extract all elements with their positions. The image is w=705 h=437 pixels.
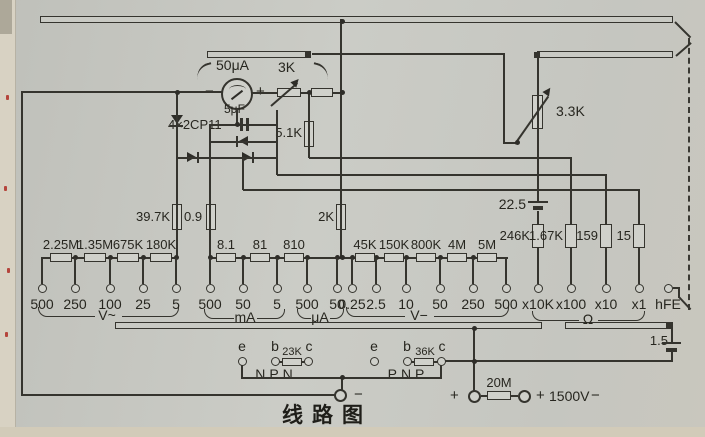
scan-mark	[4, 186, 7, 191]
wire	[336, 258, 338, 284]
wire	[678, 287, 680, 298]
terminal-ua-500	[303, 284, 312, 293]
resistor-vdc	[416, 253, 436, 262]
section-label-ohm: Ω	[583, 312, 593, 326]
pnp-resistor	[414, 358, 434, 366]
npn-b-label: b	[271, 339, 279, 353]
wire	[405, 258, 407, 284]
hv-plus-label: +	[450, 388, 459, 403]
wire	[276, 258, 278, 284]
resistor-label-vdc: 4M	[448, 238, 466, 251]
wire	[351, 258, 353, 284]
wire	[142, 258, 144, 284]
terminal-label-ma: 50	[235, 297, 251, 311]
npn-c-label: c	[306, 339, 313, 353]
terminal-ohm-x10K	[534, 284, 543, 293]
wire	[570, 158, 572, 225]
junction-dot	[340, 90, 345, 95]
resistor-ohm	[633, 224, 645, 248]
terminal-vdc-0.25	[348, 284, 357, 293]
resistor-0.9	[206, 204, 216, 230]
resistor-label-vdc: 5M	[478, 238, 496, 251]
wire	[375, 258, 377, 284]
terminal-vac-25	[139, 284, 148, 293]
wire	[439, 258, 441, 284]
series-resistor	[311, 88, 333, 97]
terminal-label-vdc: 50	[432, 297, 448, 311]
page-edge-left	[0, 0, 16, 437]
resistor-vdc	[384, 253, 404, 262]
section-label-ma: mA	[235, 310, 256, 324]
terminal-label-vdc: 500	[494, 297, 517, 311]
wire	[472, 258, 474, 284]
terminal-label-ma: 500	[198, 297, 221, 311]
terminal-label-ma: 5	[273, 297, 281, 311]
brace	[532, 311, 579, 321]
terminal-ohm-x100	[567, 284, 576, 293]
resistor-ma	[250, 253, 270, 262]
terminal-hfe	[664, 284, 673, 293]
strip-link	[674, 21, 691, 38]
scan-smudge	[0, 0, 12, 34]
resistor-vdc	[447, 253, 467, 262]
terminal-label-vac: 5	[172, 297, 180, 311]
wire	[175, 258, 177, 284]
resistor-label: 2K	[318, 210, 334, 223]
resistor-label: 0.9	[184, 210, 202, 223]
meter-bezel-arc-right	[310, 62, 330, 81]
terminal-ua-50	[333, 284, 342, 293]
pnp-b-label: b	[403, 339, 411, 353]
wire	[109, 258, 111, 284]
diagram-title: 线路图	[282, 399, 372, 429]
resistor-label-vac: 180K	[146, 238, 176, 251]
wire	[252, 92, 277, 94]
terminal-vdc-500	[502, 284, 511, 293]
wire	[306, 258, 308, 284]
resistor-label-vac: 2.25M	[43, 238, 79, 251]
junction-dot	[307, 90, 312, 95]
resistor-label-ohm: 246K	[500, 229, 530, 242]
hv-value-label: 1500V	[549, 389, 589, 403]
terminal-vdc-10	[402, 284, 411, 293]
junction-dot	[235, 122, 240, 127]
section-label-ua: μA	[311, 310, 328, 324]
hv-terminal-left	[468, 390, 481, 403]
terminal-label-vac: 500	[30, 297, 53, 311]
terminal-ma-50	[239, 284, 248, 293]
terminal-vac-500	[38, 284, 47, 293]
strip-contact	[305, 52, 311, 58]
npn-resistor-label: 23K	[282, 347, 302, 358]
scan-mark	[7, 268, 10, 273]
terminal-label-vac: 25	[135, 297, 151, 311]
wire	[671, 329, 673, 343]
resistor-vac	[50, 253, 72, 262]
pot-3k-label: 3K	[278, 60, 295, 74]
wire	[537, 247, 539, 284]
wire	[340, 19, 342, 258]
resistor-label-vdc: 45K	[353, 238, 376, 251]
wire	[605, 247, 607, 284]
wire	[309, 157, 572, 159]
wire	[74, 258, 76, 284]
wire	[241, 365, 243, 378]
scan-mark	[6, 95, 9, 100]
meter-range-label: 50μA	[216, 58, 249, 72]
wire	[570, 247, 572, 284]
battery-22.5-label: 22.5	[499, 197, 526, 211]
terminal-label-vdc: 10	[398, 297, 414, 311]
resistor-label: 39.7K	[136, 210, 170, 223]
wire	[21, 91, 23, 396]
junction-dot	[340, 255, 345, 260]
npn-b-terminal	[271, 357, 280, 366]
hv-plus2-label: +	[536, 388, 545, 403]
hv-minus-label: −	[591, 388, 600, 403]
wire	[277, 174, 607, 176]
pnp-e-terminal	[370, 357, 379, 366]
battery-short-plate	[533, 206, 543, 210]
wire	[22, 91, 222, 93]
terminal-ohm-x1	[635, 284, 644, 293]
hv-resistor-label: 20M	[486, 376, 511, 389]
terminal-label-vac: 100	[98, 297, 121, 311]
resistor-label-vac: 675K	[113, 238, 143, 251]
terminal-label-hfe: hFE	[655, 297, 681, 311]
terminal-ohm-x10	[602, 284, 611, 293]
terminal-vac-5	[172, 284, 181, 293]
brace	[598, 311, 645, 321]
pnp-c-label: c	[439, 339, 446, 353]
wire	[503, 53, 505, 143]
wire	[209, 124, 211, 258]
terminal-vac-250	[71, 284, 80, 293]
wire	[440, 365, 442, 378]
wire	[308, 92, 310, 158]
wire	[210, 141, 277, 143]
resistor-ohm	[565, 224, 577, 248]
resistor-ma	[284, 253, 304, 262]
terminal-label-ohm: x10K	[522, 297, 554, 311]
pot-3.3k-arrowhead	[542, 85, 553, 96]
wire	[638, 190, 640, 225]
selector-dashed-line	[688, 38, 690, 310]
resistor-label-ma: 810	[283, 238, 305, 251]
resistor-vdc	[355, 253, 375, 262]
wire	[537, 57, 539, 203]
resistor-ma	[216, 253, 236, 262]
resistor-vdc	[477, 253, 497, 262]
terminal-vdc-250	[469, 284, 478, 293]
schematic-scan: 50μA − + 3K 5μF 4×2CP11 5.1K 39.7K 0.9 2…	[0, 0, 705, 437]
wire	[210, 124, 277, 126]
resistor-vac	[117, 253, 139, 262]
junction-dot	[340, 375, 345, 380]
terminal-label-ohm: x100	[556, 297, 586, 311]
junction-dot	[515, 140, 520, 145]
resistor-label-vdc: 800K	[411, 238, 441, 251]
terminal-label-ua: 500	[295, 297, 318, 311]
resistor-label-ohm: 1.67K	[529, 229, 563, 242]
resistor-ohm	[600, 224, 612, 248]
terminal-label-vac: 250	[63, 297, 86, 311]
wire	[22, 394, 336, 396]
wire	[209, 258, 211, 284]
battery-1.5-label: 1.5	[650, 334, 668, 347]
switch-strip-right	[537, 51, 673, 58]
wire	[511, 395, 518, 397]
pnp-b-terminal	[403, 357, 412, 366]
terminal-vdc-2.5	[372, 284, 381, 293]
wire	[341, 378, 343, 390]
wire	[505, 258, 507, 284]
terminal-label-ohm: x10	[595, 297, 618, 311]
cap-label: 5μF	[224, 103, 245, 115]
resistor-label-ma: 81	[253, 238, 267, 251]
wire	[481, 395, 487, 397]
terminal-ma-500	[206, 284, 215, 293]
switch-strip-bottom-right	[565, 322, 673, 329]
wire	[242, 158, 244, 190]
pnp-e-label: e	[370, 339, 378, 353]
resistor-label-ma: 8.1	[217, 238, 235, 251]
switch-strip-top	[40, 16, 673, 23]
terminal-label-vdc: 2.5	[366, 297, 385, 311]
terminal-ma-5	[273, 284, 282, 293]
junction-dot	[340, 19, 345, 24]
resistor-label-vac: 1.35M	[77, 238, 113, 251]
pnp-resistor-label: 36K	[415, 347, 435, 358]
terminal-label-ohm: x1	[632, 297, 647, 311]
meter-bezel-arc-left	[194, 62, 214, 81]
terminal-vac-100	[106, 284, 115, 293]
resistor-vac	[84, 253, 106, 262]
resistor-label-vdc: 150K	[379, 238, 409, 251]
resistor-label: 5.1K	[275, 126, 302, 139]
wire	[537, 211, 539, 225]
scan-mark	[5, 332, 8, 337]
npn-resistor	[282, 358, 302, 366]
pot-3.3k-label: 3.3K	[556, 104, 585, 118]
wire	[638, 247, 640, 284]
wire	[243, 189, 640, 191]
wire	[176, 92, 178, 258]
wire	[605, 175, 607, 225]
npn-e-label: e	[238, 339, 246, 353]
wire	[177, 157, 278, 159]
hv-terminal-right	[518, 390, 531, 403]
wire	[445, 360, 673, 362]
terminal-label-vdc: 0.25	[338, 297, 365, 311]
resistor-label-ohm: 159	[576, 229, 598, 242]
wire	[41, 258, 43, 284]
terminal-vdc-50	[436, 284, 445, 293]
wire	[671, 352, 673, 361]
terminal-label-vdc: 250	[461, 297, 484, 311]
wire	[276, 110, 278, 175]
hv-resistor	[487, 391, 511, 400]
junction-dot	[472, 326, 477, 331]
npn-c-terminal	[304, 357, 313, 366]
resistor-vac	[150, 253, 172, 262]
resistor-label-ohm: 15	[617, 229, 631, 242]
wire	[242, 258, 244, 284]
junction-dot	[472, 359, 477, 364]
junction-dot	[175, 90, 180, 95]
